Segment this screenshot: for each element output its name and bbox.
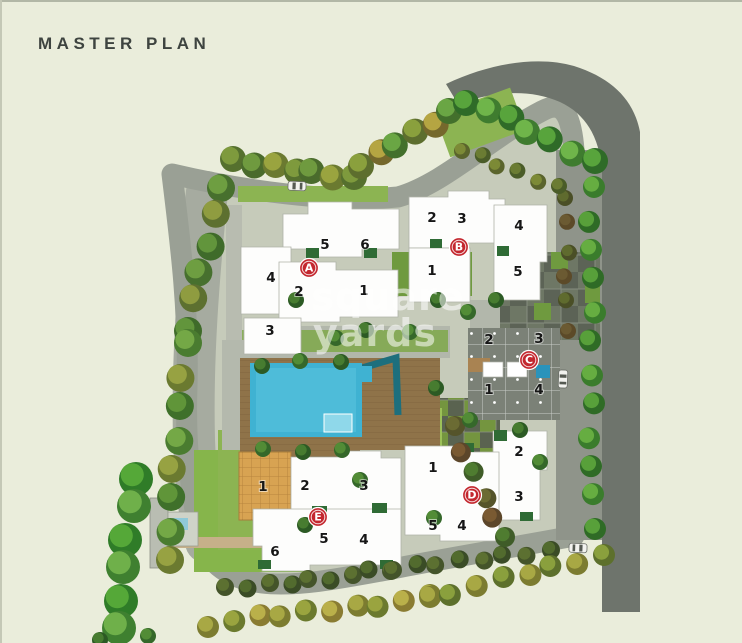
page-title: MASTER PLAN [38,34,210,54]
car-icon [558,370,568,388]
tree-icon [582,267,604,289]
tower-marker-E: E [309,508,328,527]
tree-icon [489,158,505,174]
tree-icon [537,126,563,152]
tree-icon [475,147,491,163]
shrub-icon [254,358,270,374]
tree-icon [166,392,194,420]
tree-icon [475,552,493,570]
tree-icon [566,553,588,575]
unit-number-D-1: 1 [428,460,437,476]
unit-number-C-2: 2 [484,332,493,348]
tree-icon [451,550,469,568]
tree-icon [559,214,575,230]
tree-icon [439,584,461,606]
tree-icon [156,546,184,574]
tree-icon [539,555,561,577]
tree-icon [581,364,603,386]
tree-icon [582,483,604,505]
tree-icon [299,570,317,588]
tree-icon [360,561,378,579]
svg-text:C: C [525,354,533,367]
unit-number-E-6: 6 [270,544,279,560]
unit-number-D-5: 5 [428,518,437,534]
unit-number-E-4: 4 [359,532,368,548]
tree-icon [106,550,140,584]
tree-icon [466,575,488,597]
tree-icon [157,518,185,546]
shrub-icon [334,442,350,458]
shrub-icon [512,422,528,438]
tree-icon [384,561,402,579]
tree-icon [559,141,585,167]
tree-icon [197,616,219,638]
shrub-icon [292,353,308,369]
tree-icon [207,174,235,202]
shrub-icon [532,454,548,470]
shrub-icon [295,444,311,460]
tree-icon [223,610,245,632]
shrub-icon [428,380,444,396]
tree-icon [493,546,511,564]
tree-icon [166,364,194,392]
tree-icon [239,580,257,598]
tree-icon [493,566,515,588]
tree-icon [158,455,186,483]
unit-number-C-1: 1 [484,382,493,398]
unit-number-C-4: 4 [534,382,543,398]
tree-icon [322,572,340,590]
unit-number-A-4: 4 [266,270,275,286]
shrub-icon [488,292,504,308]
unit-number-E-2: 2 [300,478,309,494]
tree-icon [367,596,389,618]
tree-icon [454,143,470,159]
tower-marker-D: D [463,486,482,505]
tree-icon [580,455,602,477]
unit-number-B-5: 5 [513,264,522,280]
tree-icon [476,97,502,123]
tree-icon [558,292,574,308]
shrub-icon [462,412,478,428]
tree-icon [560,323,576,339]
tree-icon [578,211,600,233]
tree-icon [495,527,515,547]
tree-icon [517,547,535,565]
unit-number-B-4: 4 [514,218,523,234]
tree-icon [347,595,369,617]
unit-number-A-3: 3 [265,323,274,339]
tree-icon [393,590,415,612]
tree-icon [216,578,234,596]
tree-icon [482,508,502,528]
site-plan-drawing: 564213A23415B2314C21354D123546E square y… [0,0,742,643]
unit-number-E-1: 1 [258,479,267,495]
unit-number-D-4: 4 [457,518,466,534]
tree-icon [551,178,567,194]
svg-text:D: D [467,489,476,502]
unit-number-E-3: 3 [359,478,368,494]
tree-icon [344,566,362,584]
tree-icon [184,258,212,286]
shrub-icon [255,441,271,457]
tower-marker-B: B [450,238,469,257]
tower-marker-C: C [520,351,539,370]
unit-number-D-3: 3 [514,489,523,505]
tree-icon [453,90,479,116]
tree-icon [583,392,605,414]
unit-number-A-6: 6 [360,237,369,253]
car-icon [288,181,306,191]
watermark-line2: yards [313,311,437,355]
kids-pool [324,414,352,432]
tree-icon [514,119,540,145]
tree-icon [578,427,600,449]
unit-number-B-3: 3 [457,211,466,227]
tree-icon [519,564,541,586]
tree-icon [584,302,606,324]
tree-icon [593,544,615,566]
tree-icon [583,176,605,198]
car-icon [569,543,587,553]
tree-icon [582,148,608,174]
tree-icon [202,200,230,228]
tree-icon [556,268,572,284]
svg-text:A: A [305,262,314,275]
tree-icon [165,427,193,455]
tree-icon [284,576,302,594]
tree-icon [321,601,343,623]
tree-icon [249,604,271,626]
unit-number-B-2: 2 [427,210,436,226]
tree-icon [295,599,317,621]
tree-icon [157,483,185,511]
tree-icon [579,330,601,352]
unit-number-A-5: 5 [320,237,329,253]
shrub-icon [333,354,349,370]
tree-icon [419,586,441,608]
tree-icon [509,163,525,179]
tree-icon [580,239,602,261]
svg-text:B: B [455,241,463,254]
tree-icon [269,605,291,627]
tree-icon [561,245,577,261]
tree-icon [197,233,225,261]
unit-number-A-2: 2 [294,284,303,300]
shrub-icon [140,628,156,643]
unit-number-E-5: 5 [319,531,328,547]
tree-icon [464,462,484,482]
tree-icon [174,329,202,357]
svg-text:E: E [314,511,322,524]
master-plan-canvas: 564213A23415B2314C21354D123546E square y… [0,0,742,643]
unit-number-C-3: 3 [534,331,543,347]
tree-icon [179,284,207,312]
tree-icon [445,416,465,436]
tree-icon [530,174,546,190]
tree-icon [117,489,151,523]
tree-icon [426,556,444,574]
tree-icon [261,574,279,592]
tree-icon [584,518,606,540]
tree-icon [451,442,471,462]
unit-number-D-2: 2 [514,444,523,460]
tree-icon [409,555,427,573]
